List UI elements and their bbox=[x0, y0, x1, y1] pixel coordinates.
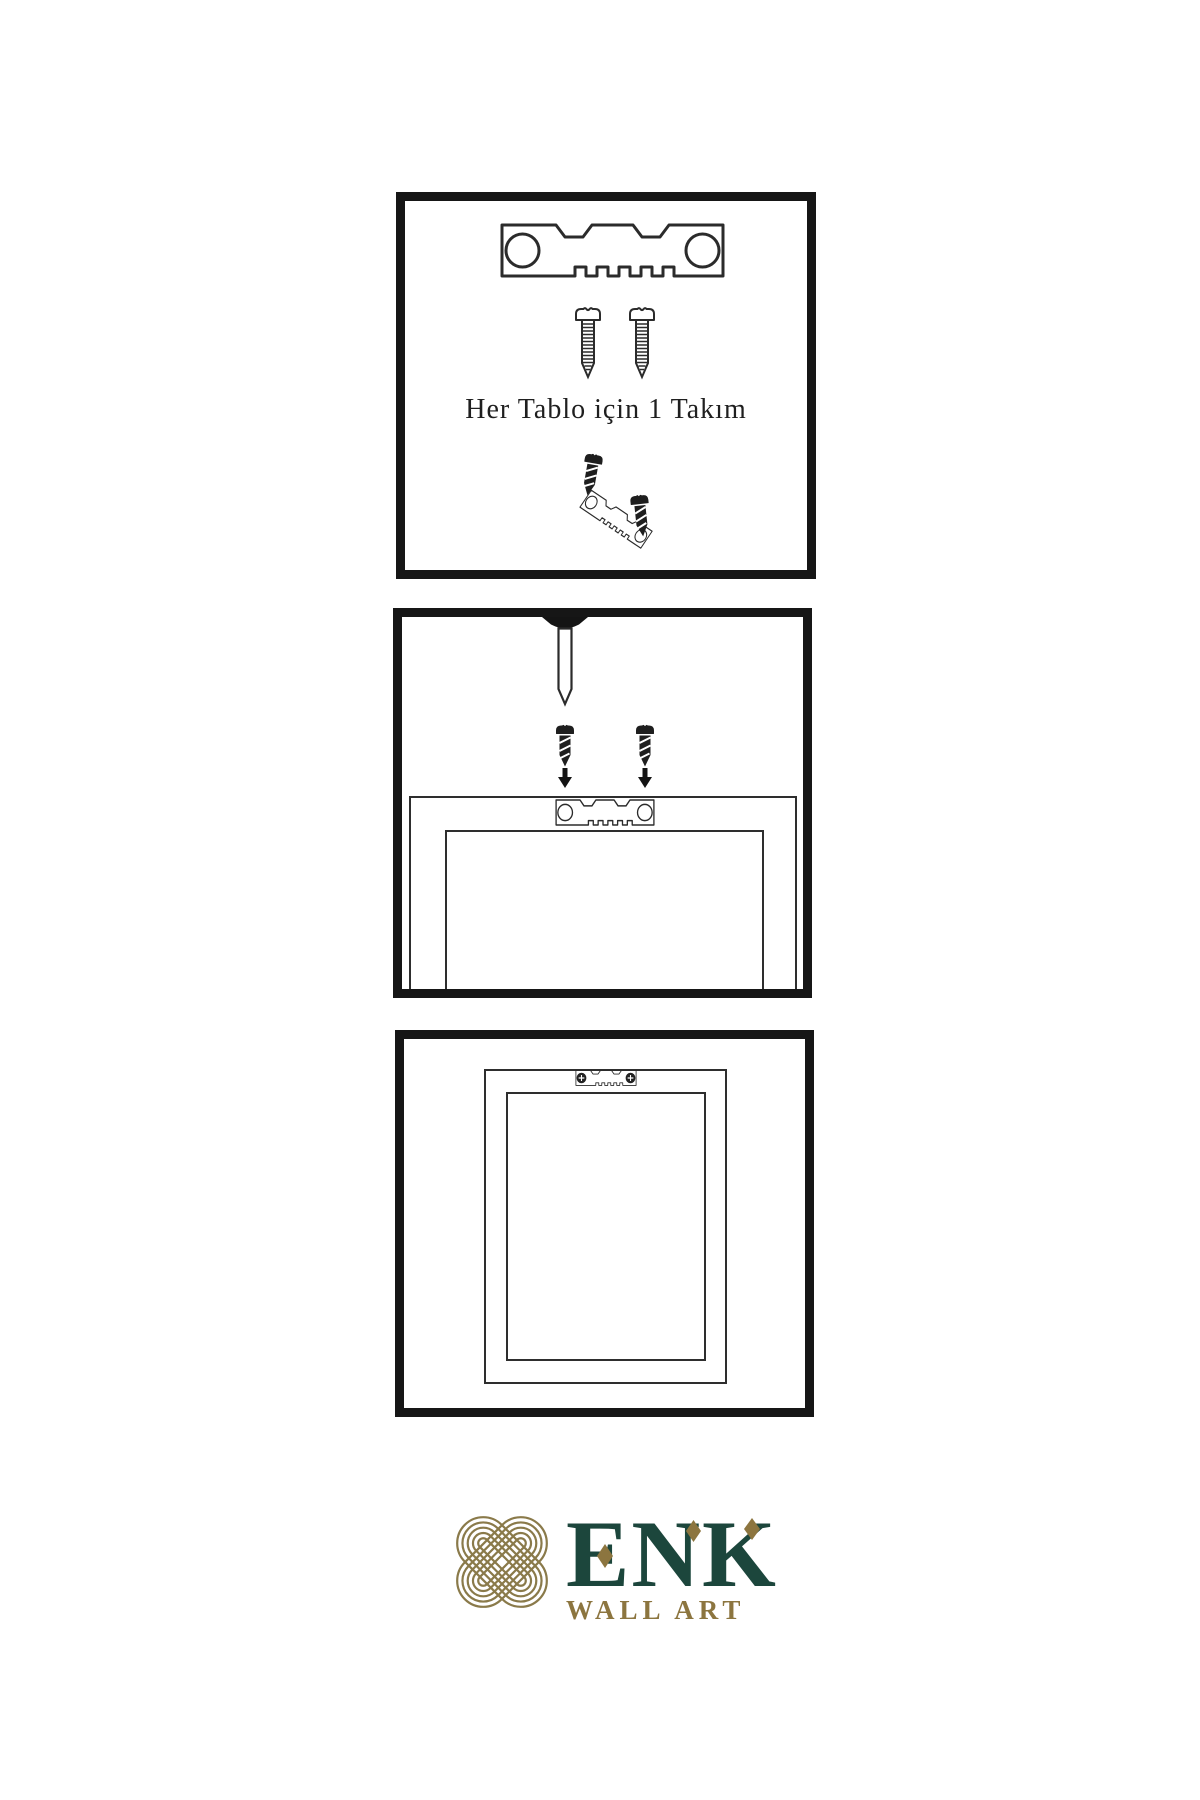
sawtooth-hanger-icon bbox=[495, 223, 730, 278]
screw-dark-icon bbox=[629, 493, 653, 539]
arrow-down-icon bbox=[558, 768, 572, 788]
sawtooth-hanger-mounted-icon bbox=[574, 1070, 638, 1086]
brand-name: ENK bbox=[566, 1507, 778, 1602]
instruction-sheet: Her Tablo için 1 Takım bbox=[0, 0, 1200, 1800]
frame-front-inner-outline bbox=[506, 1092, 706, 1361]
panel-hardware-kit: Her Tablo için 1 Takım bbox=[396, 192, 816, 579]
panel-hang-frame bbox=[395, 1030, 814, 1417]
nail-icon bbox=[542, 617, 588, 717]
brand-subtitle: WALL ART bbox=[566, 1596, 745, 1626]
arrow-down-icon bbox=[638, 768, 652, 788]
kit-caption: Her Tablo için 1 Takım bbox=[405, 394, 807, 426]
panel-attach-hanger bbox=[393, 608, 812, 998]
frame-back-inner-outline bbox=[445, 830, 764, 989]
screw-icon bbox=[573, 306, 603, 380]
screw-dark-icon bbox=[555, 724, 575, 768]
screw-dark-icon bbox=[635, 724, 655, 768]
sawtooth-hanger-icon bbox=[553, 799, 657, 826]
knot-emblem-icon bbox=[438, 1498, 566, 1626]
screw-icon bbox=[627, 306, 657, 380]
